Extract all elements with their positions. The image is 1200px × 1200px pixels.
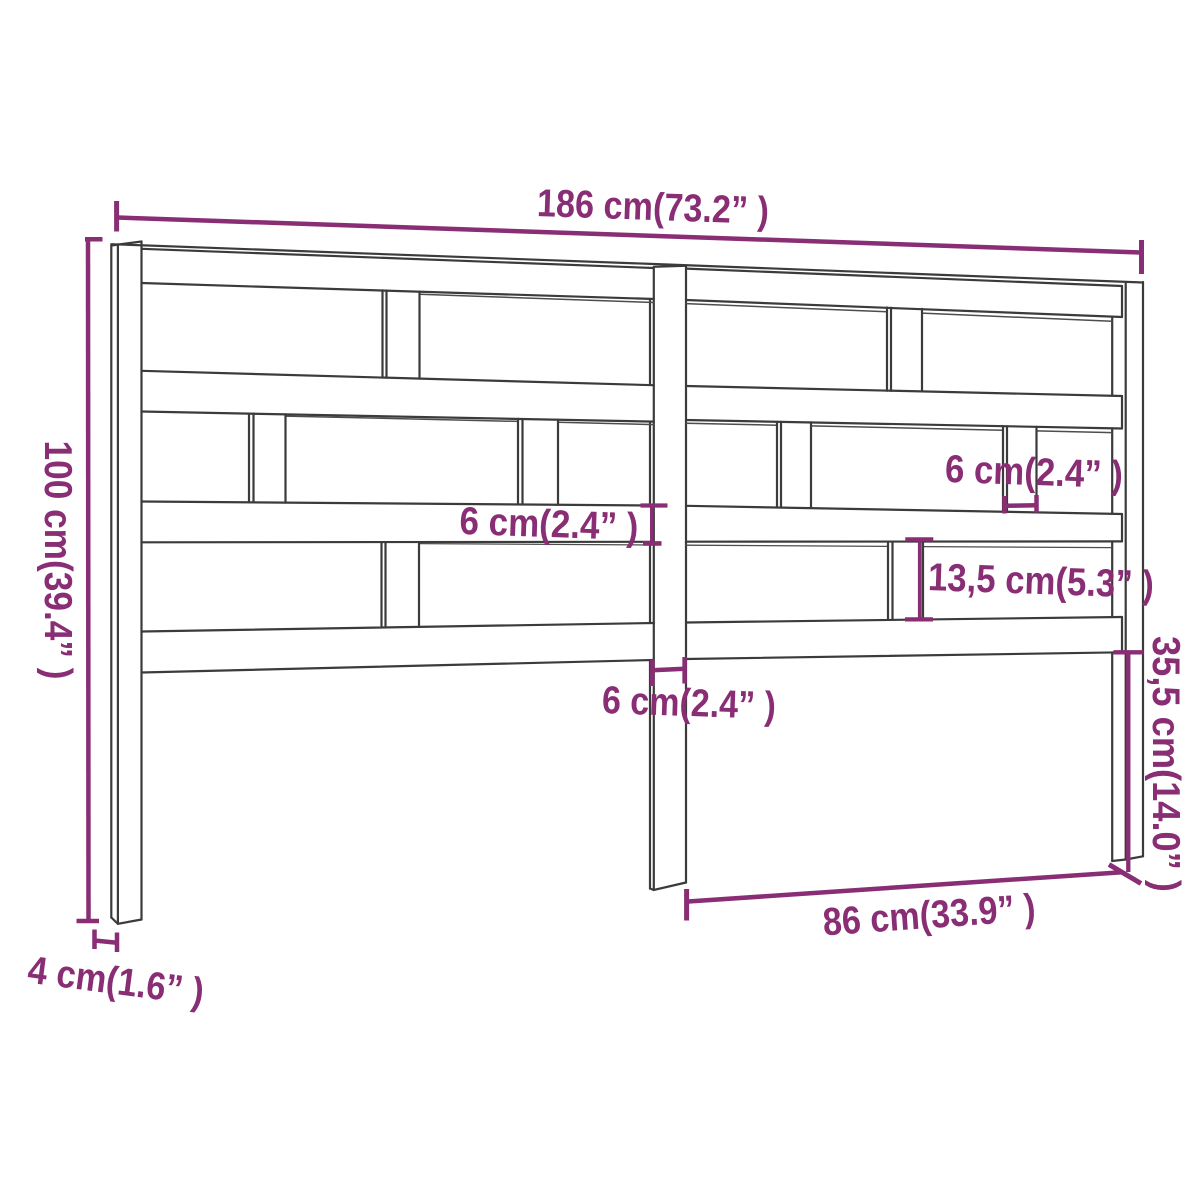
svg-text:6 cm(2.4” ): 6 cm(2.4” ) xyxy=(944,448,1123,497)
svg-text:6 cm(2.4” ): 6 cm(2.4” ) xyxy=(459,500,639,549)
svg-text:6 cm(2.4” ): 6 cm(2.4” ) xyxy=(601,679,776,728)
svg-text:186 cm(73.2” ): 186 cm(73.2” ) xyxy=(536,182,769,233)
svg-text:13,5 cm(5.3” ): 13,5 cm(5.3” ) xyxy=(927,556,1154,607)
svg-text:4 cm(1.6” ): 4 cm(1.6” ) xyxy=(25,949,206,1015)
svg-text:100 cm(39.4” ): 100 cm(39.4” ) xyxy=(36,441,79,680)
svg-text:35,5 cm(14.0” ): 35,5 cm(14.0” ) xyxy=(1144,636,1187,892)
svg-text:86 cm(33.9” ): 86 cm(33.9” ) xyxy=(821,887,1036,945)
